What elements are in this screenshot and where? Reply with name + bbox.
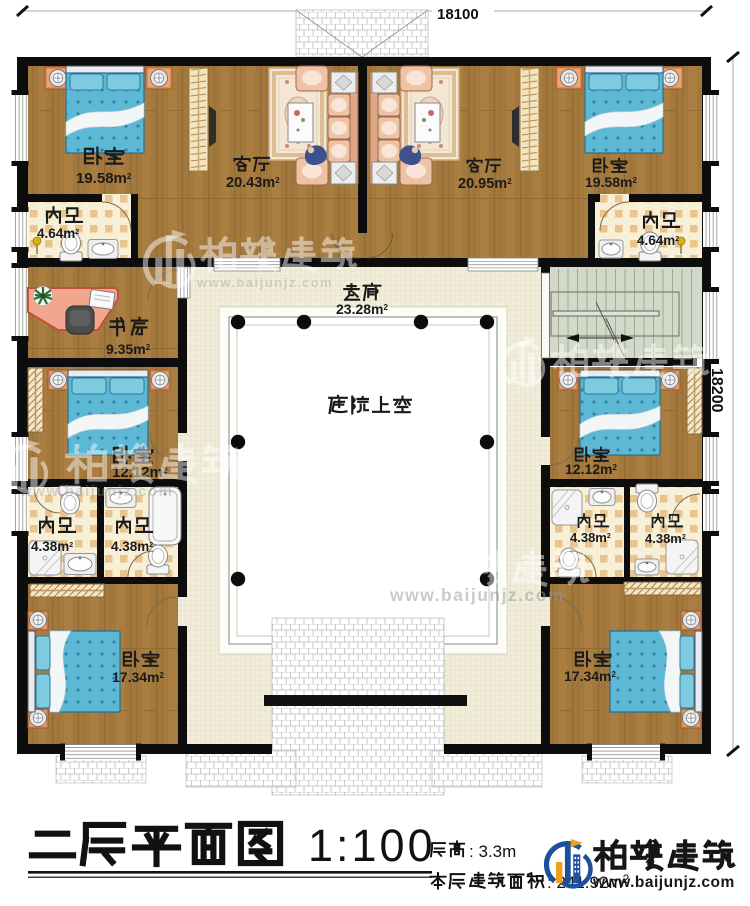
svg-text:: 3.3m: : 3.3m [469, 842, 516, 861]
svg-text:www.baijunjz.com: www.baijunjz.com [389, 585, 565, 605]
svg-text:17.34m2: 17.34m2 [112, 669, 164, 685]
svg-text:4.38m2: 4.38m2 [570, 530, 611, 545]
svg-text:18100: 18100 [437, 6, 479, 23]
svg-text:4.38m2: 4.38m2 [31, 539, 73, 554]
svg-text:4.64m2: 4.64m2 [37, 226, 79, 241]
svg-text:4.38m2: 4.38m2 [111, 539, 153, 554]
svg-text:12.12m2: 12.12m2 [565, 461, 617, 477]
svg-text:20.43m2: 20.43m2 [226, 175, 280, 191]
svg-text:19.58m2: 19.58m2 [76, 170, 132, 187]
svg-text:9.35m2: 9.35m2 [106, 341, 151, 357]
svg-text:4.38m2: 4.38m2 [645, 531, 686, 546]
svg-text:www.baijunjz.com: www.baijunjz.com [196, 275, 333, 290]
svg-text:www.baijunjz.com: www.baijunjz.com [19, 483, 173, 500]
svg-text:19.58m2: 19.58m2 [585, 174, 637, 190]
svg-text:23.28m2: 23.28m2 [336, 301, 388, 317]
svg-text:20.95m2: 20.95m2 [458, 176, 512, 192]
svg-text:4.64m2: 4.64m2 [637, 233, 679, 248]
svg-text:1:100: 1:100 [308, 820, 436, 871]
svg-text:www.baijunjz.com: www.baijunjz.com [592, 874, 735, 891]
svg-text:17.34m2: 17.34m2 [564, 668, 616, 684]
